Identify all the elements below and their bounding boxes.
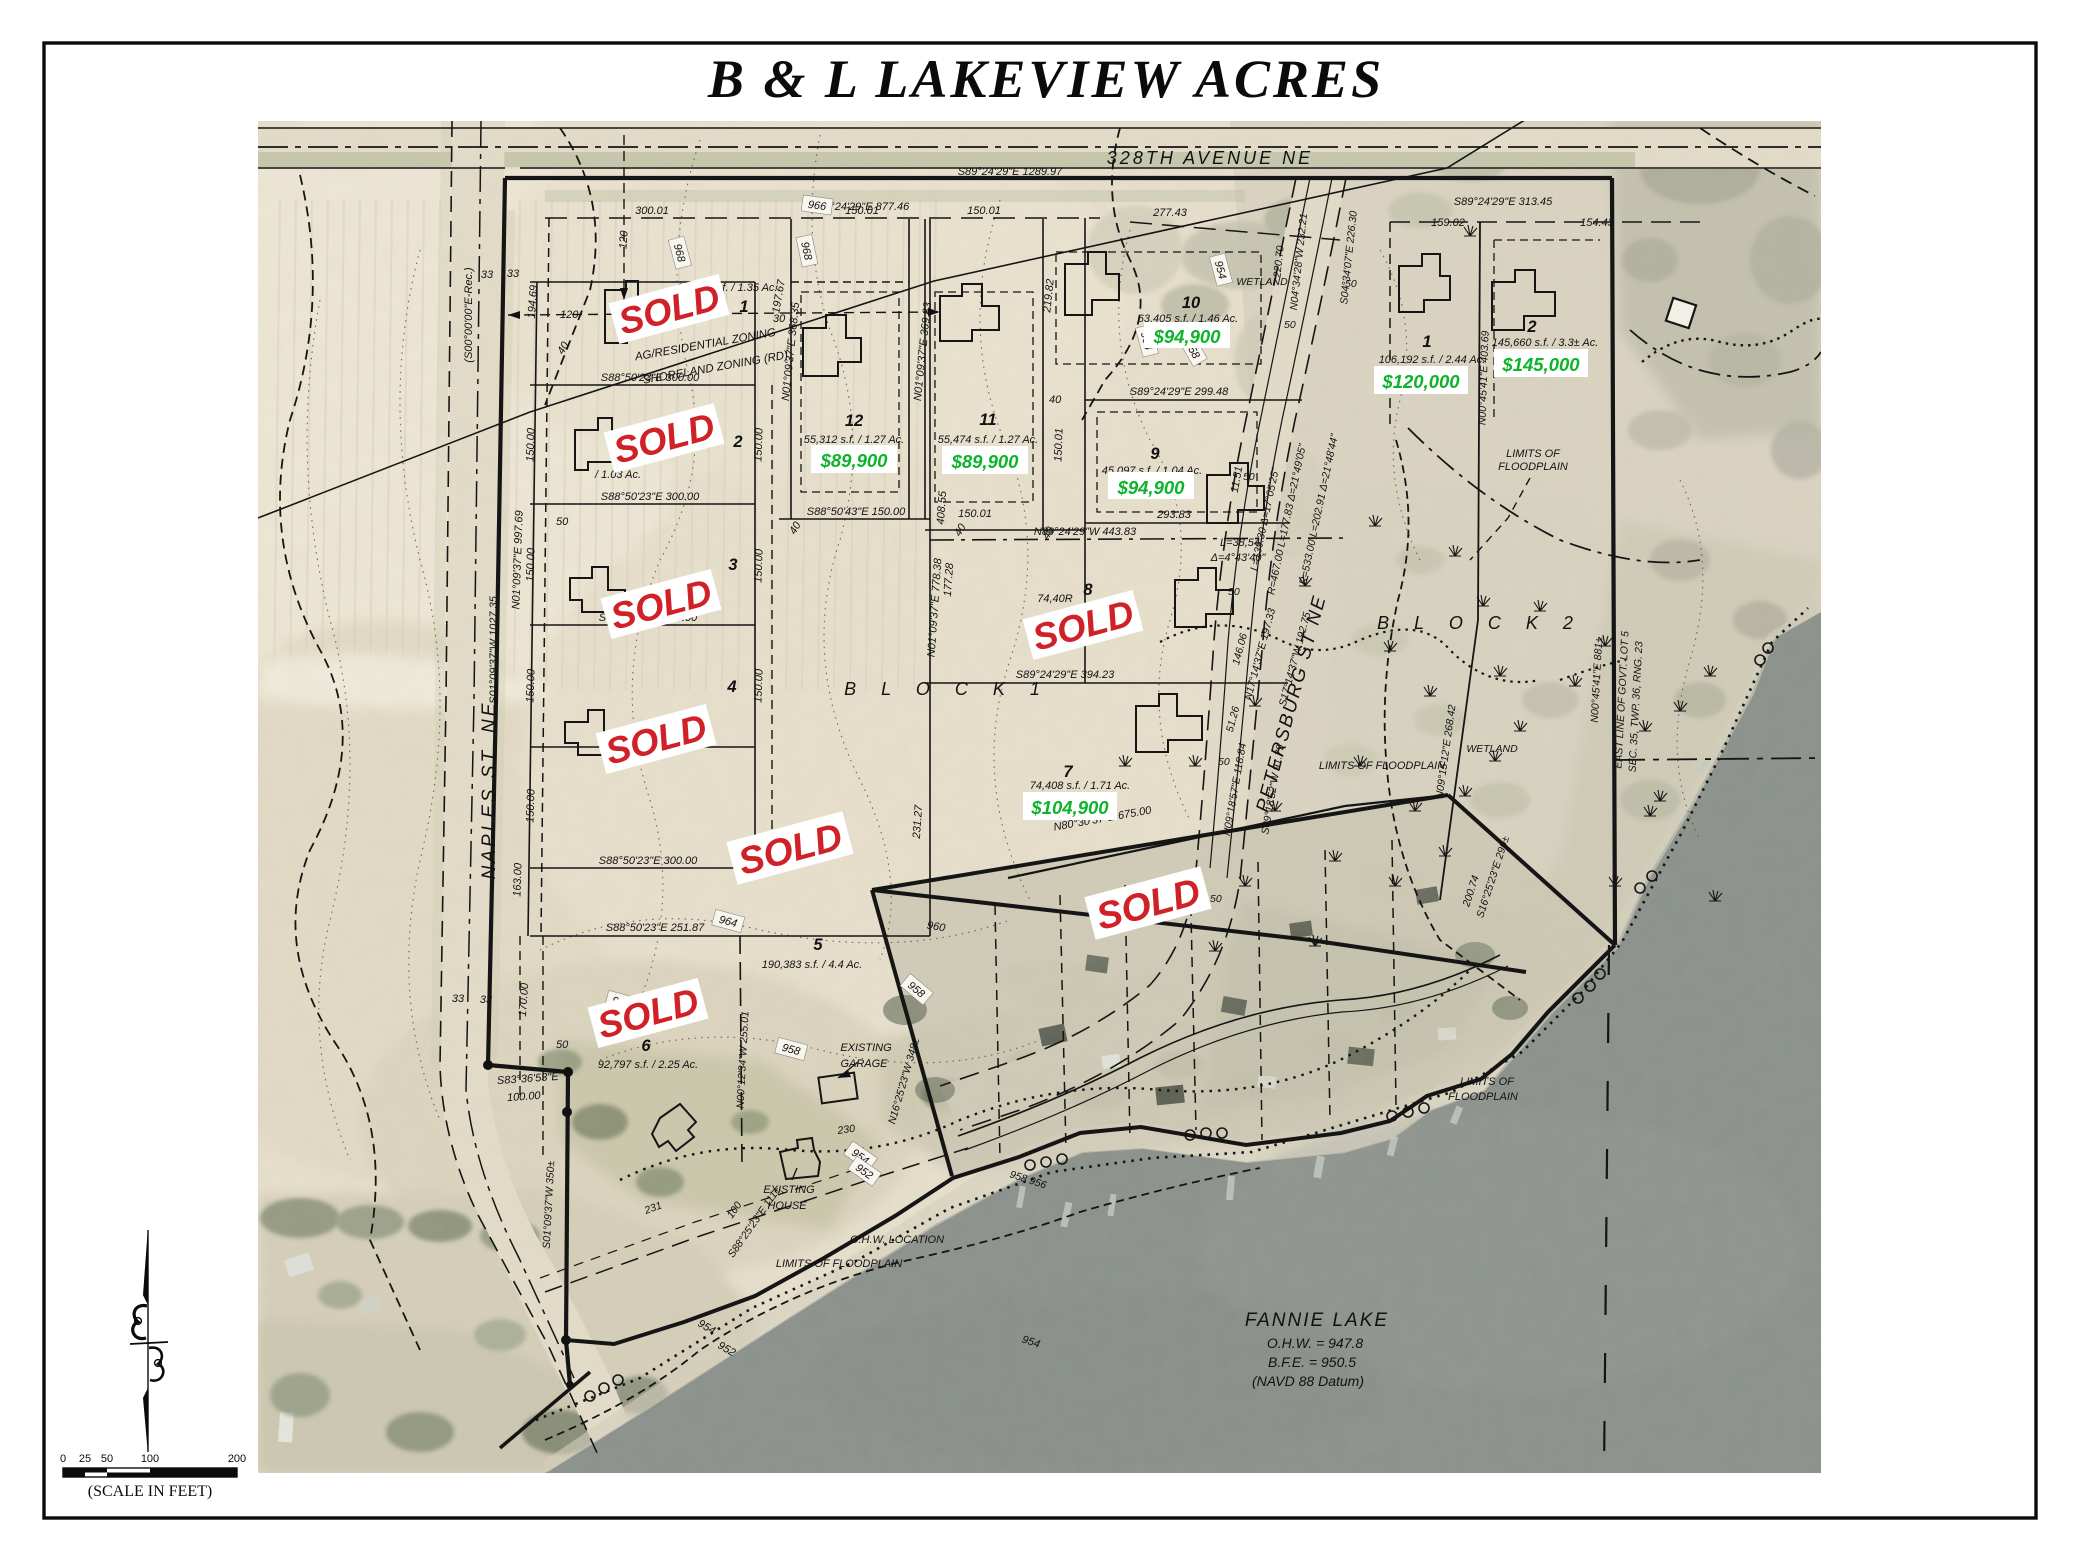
svg-text:328TH AVENUE NE: 328TH AVENUE NE xyxy=(1107,148,1313,168)
svg-text:4: 4 xyxy=(726,678,736,696)
svg-text:S89°24'29"E 1289.97: S89°24'29"E 1289.97 xyxy=(958,166,1063,178)
svg-text:$120,000: $120,000 xyxy=(1381,371,1460,392)
svg-text:S01°09'37"W 1027.35: S01°09'37"W 1027.35 xyxy=(488,595,500,704)
svg-text:33: 33 xyxy=(452,993,465,1005)
svg-text:7: 7 xyxy=(1063,763,1073,781)
svg-text:WETLAND: WETLAND xyxy=(1236,276,1288,288)
svg-text:100.00: 100.00 xyxy=(507,1090,542,1104)
svg-text:30: 30 xyxy=(773,313,786,325)
svg-text:55,474 s.f. / 1.27 Ac.: 55,474 s.f. / 1.27 Ac. xyxy=(938,434,1039,446)
svg-text:55,312 s.f. / 1.27 Ac.: 55,312 s.f. / 1.27 Ac. xyxy=(804,434,905,446)
svg-text:50: 50 xyxy=(556,1039,569,1051)
svg-text:8: 8 xyxy=(1083,581,1093,599)
svg-text:150.00: 150.00 xyxy=(752,427,765,462)
svg-text:LIMITS OF: LIMITS OF xyxy=(1506,448,1561,460)
svg-text:33: 33 xyxy=(481,269,494,281)
svg-text:154.43: 154.43 xyxy=(1580,217,1615,229)
svg-text:300.01: 300.01 xyxy=(635,205,669,217)
svg-text:(NAVD 88 Datum): (NAVD 88 Datum) xyxy=(1252,1373,1364,1389)
svg-text:159.02: 159.02 xyxy=(1431,217,1465,229)
svg-text:S88°50'43"E 150.00: S88°50'43"E 150.00 xyxy=(807,506,906,518)
svg-text:150.00: 150.00 xyxy=(524,788,537,823)
svg-text:$145,000: $145,000 xyxy=(1501,354,1580,375)
svg-text:S89°24'29"E 313.45: S89°24'29"E 313.45 xyxy=(1454,196,1553,208)
svg-text:EXISTING: EXISTING xyxy=(840,1042,892,1054)
svg-text:FANNIE LAKE: FANNIE LAKE xyxy=(1245,1310,1389,1331)
svg-text:$104,900: $104,900 xyxy=(1030,797,1109,818)
svg-text:293.83: 293.83 xyxy=(1156,509,1192,521)
svg-text:EXISTING: EXISTING xyxy=(763,1184,815,1196)
svg-text:120: 120 xyxy=(617,229,630,249)
svg-text:150.01: 150.01 xyxy=(967,205,1001,217)
svg-text:190,383 s.f. / 4.4 Ac.: 190,383 s.f. / 4.4 Ac. xyxy=(762,959,863,971)
svg-text:LIMITS OF FLOODPLAIN: LIMITS OF FLOODPLAIN xyxy=(1319,760,1445,772)
svg-text:50: 50 xyxy=(1210,893,1222,905)
svg-text:5: 5 xyxy=(813,936,823,954)
svg-text:S88°50'23"E 251.87: S88°50'23"E 251.87 xyxy=(606,922,705,934)
svg-text:3: 3 xyxy=(728,556,737,574)
svg-text:100: 100 xyxy=(141,1453,159,1465)
svg-text:177.28: 177.28 xyxy=(942,562,956,597)
svg-text:50: 50 xyxy=(1345,278,1357,290)
svg-text:GARAGE: GARAGE xyxy=(840,1058,888,1070)
svg-text:74,408 s.f. / 1.71 Ac.: 74,408 s.f. / 1.71 Ac. xyxy=(1030,780,1131,792)
svg-text:33: 33 xyxy=(480,994,493,1006)
svg-text:150.00: 150.00 xyxy=(752,548,765,583)
svg-text:92,797 s.f. / 2.25 Ac.: 92,797 s.f. / 2.25 Ac. xyxy=(598,1059,699,1071)
svg-text:1: 1 xyxy=(739,298,748,316)
svg-text:B.F.E. = 950.5: B.F.E. = 950.5 xyxy=(1268,1354,1356,1370)
svg-text:11: 11 xyxy=(979,411,996,429)
svg-text:HOUSE: HOUSE xyxy=(767,1200,807,1212)
svg-text:(S00°00'00"E-Rec.): (S00°00'00"E-Rec.) xyxy=(463,267,475,363)
svg-text:B L O C K 2: B L O C K 2 xyxy=(1377,613,1583,633)
svg-text:0: 0 xyxy=(60,1453,66,1465)
svg-text:O.H.W. LOCATION: O.H.W. LOCATION xyxy=(850,1234,944,1246)
svg-text:S89°24'29"E 299.48: S89°24'29"E 299.48 xyxy=(1130,386,1229,398)
svg-text:FLOODPLAIN: FLOODPLAIN xyxy=(1448,1091,1518,1103)
svg-text:12: 12 xyxy=(845,412,863,430)
svg-text:9: 9 xyxy=(1150,445,1160,463)
svg-text:150.01: 150.01 xyxy=(1052,428,1065,462)
svg-text:1: 1 xyxy=(1422,333,1431,351)
svg-text:O.H.W. = 947.8: O.H.W. = 947.8 xyxy=(1267,1335,1364,1351)
svg-text:120: 120 xyxy=(560,309,579,321)
svg-text:2: 2 xyxy=(1526,318,1536,336)
svg-text:150.00: 150.00 xyxy=(524,547,537,582)
svg-text:50: 50 xyxy=(1228,586,1240,598)
svg-text:150.00: 150.00 xyxy=(752,668,765,703)
svg-text:50: 50 xyxy=(1243,471,1255,483)
svg-text:$89,900: $89,900 xyxy=(951,451,1020,472)
svg-text:150.00: 150.00 xyxy=(524,668,537,703)
svg-text:50: 50 xyxy=(1284,319,1296,331)
svg-text:50: 50 xyxy=(1218,756,1230,768)
svg-text:NAPLES ST. NE: NAPLES ST. NE xyxy=(479,701,500,880)
svg-text:50: 50 xyxy=(101,1453,113,1465)
svg-text:163.00: 163.00 xyxy=(511,862,524,897)
svg-text:40: 40 xyxy=(1049,394,1062,406)
svg-text:106,192 s.f. / 2.44 Ac.: 106,192 s.f. / 2.44 Ac. xyxy=(1379,354,1486,366)
svg-text:S89°24'29"E 394.23: S89°24'29"E 394.23 xyxy=(1016,669,1115,681)
svg-text:$94,900: $94,900 xyxy=(1153,326,1222,347)
svg-text:B & L LAKEVIEW ACRES: B & L LAKEVIEW ACRES xyxy=(707,49,1384,109)
svg-text:10: 10 xyxy=(1182,294,1201,312)
svg-text:150.01: 150.01 xyxy=(845,205,879,217)
svg-text:FLOODPLAIN: FLOODPLAIN xyxy=(1498,461,1568,473)
svg-text:S88°50'23"E 300.00: S88°50'23"E 300.00 xyxy=(601,491,700,503)
svg-text:150.01: 150.01 xyxy=(958,508,992,520)
svg-text:6: 6 xyxy=(641,1037,651,1055)
svg-text:74,40R: 74,40R xyxy=(1037,593,1073,605)
svg-text:$89,900: $89,900 xyxy=(820,450,889,471)
svg-text:200: 200 xyxy=(228,1453,246,1465)
svg-text:$94,900: $94,900 xyxy=(1117,477,1186,498)
svg-text:277.43: 277.43 xyxy=(1152,207,1188,219)
svg-text:(SCALE IN FEET): (SCALE IN FEET) xyxy=(88,1483,212,1500)
svg-text:33: 33 xyxy=(507,268,520,280)
svg-text:WETLAND: WETLAND xyxy=(1466,743,1518,755)
svg-text:S88°50'23"E 300.00: S88°50'23"E 300.00 xyxy=(599,855,698,867)
svg-text:2: 2 xyxy=(732,433,742,451)
svg-text:B L O C K 1: B L O C K 1 xyxy=(844,679,1050,699)
svg-text:231.27: 231.27 xyxy=(911,804,925,840)
svg-text:LIMITS OF FLOODPLAIN: LIMITS OF FLOODPLAIN xyxy=(776,1258,902,1270)
svg-text:408.55: 408.55 xyxy=(935,490,949,525)
svg-text:145,660 s.f. / 3.3± Ac.: 145,660 s.f. / 3.3± Ac. xyxy=(1492,337,1599,349)
svg-text:150.00: 150.00 xyxy=(524,427,537,462)
svg-text:50: 50 xyxy=(556,516,569,528)
svg-text:LIMITS OF: LIMITS OF xyxy=(1460,1076,1515,1088)
svg-text:170.00: 170.00 xyxy=(517,982,531,1017)
svg-text:25: 25 xyxy=(79,1453,91,1465)
svg-text:194.69: 194.69 xyxy=(526,285,540,319)
